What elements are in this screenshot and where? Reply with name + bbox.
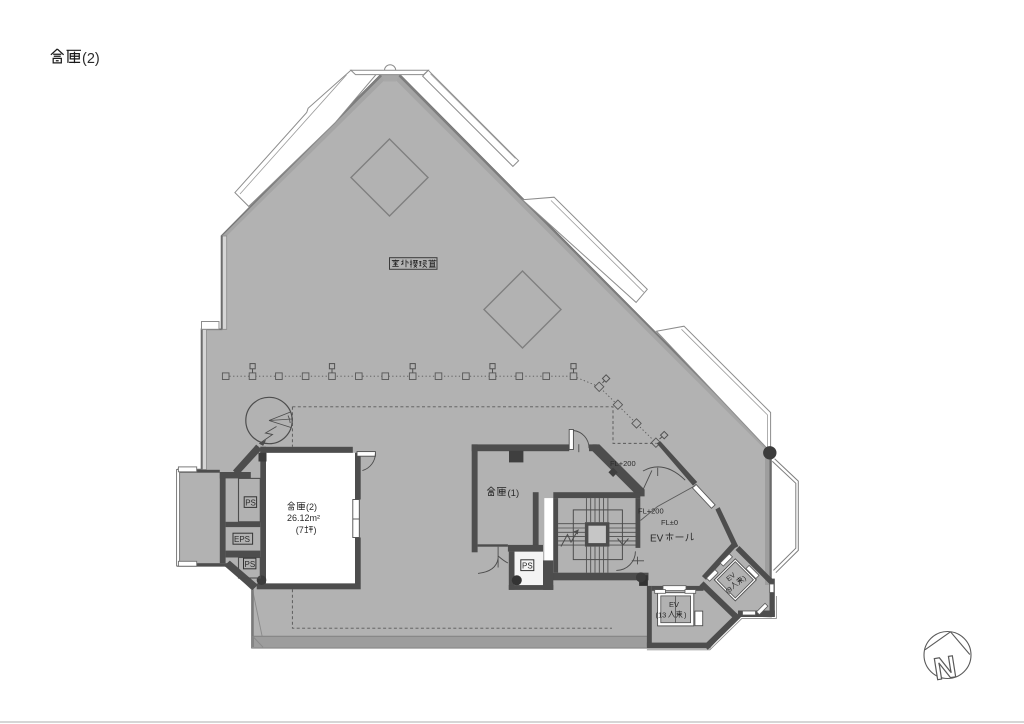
svg-text:PS: PS <box>522 562 533 571</box>
svg-text:(13: (13 <box>656 611 667 620</box>
svg-text:FL±0: FL±0 <box>661 518 678 527</box>
svg-text:FL+200: FL+200 <box>610 459 636 468</box>
svg-text:(7: (7 <box>296 525 304 535</box>
svg-text:): ) <box>314 525 317 535</box>
svg-text:26.12m²: 26.12m² <box>287 513 320 523</box>
svg-text:PS: PS <box>245 498 256 507</box>
svg-text:EV: EV <box>650 534 664 545</box>
svg-text:EV: EV <box>669 600 679 609</box>
svg-text:(1): (1) <box>508 488 520 499</box>
svg-text:EPS: EPS <box>234 535 250 544</box>
svg-text:FL+200: FL+200 <box>638 507 664 516</box>
svg-text:PS: PS <box>245 560 256 569</box>
svg-text:(2): (2) <box>82 51 100 67</box>
svg-text:(2): (2) <box>306 502 317 512</box>
